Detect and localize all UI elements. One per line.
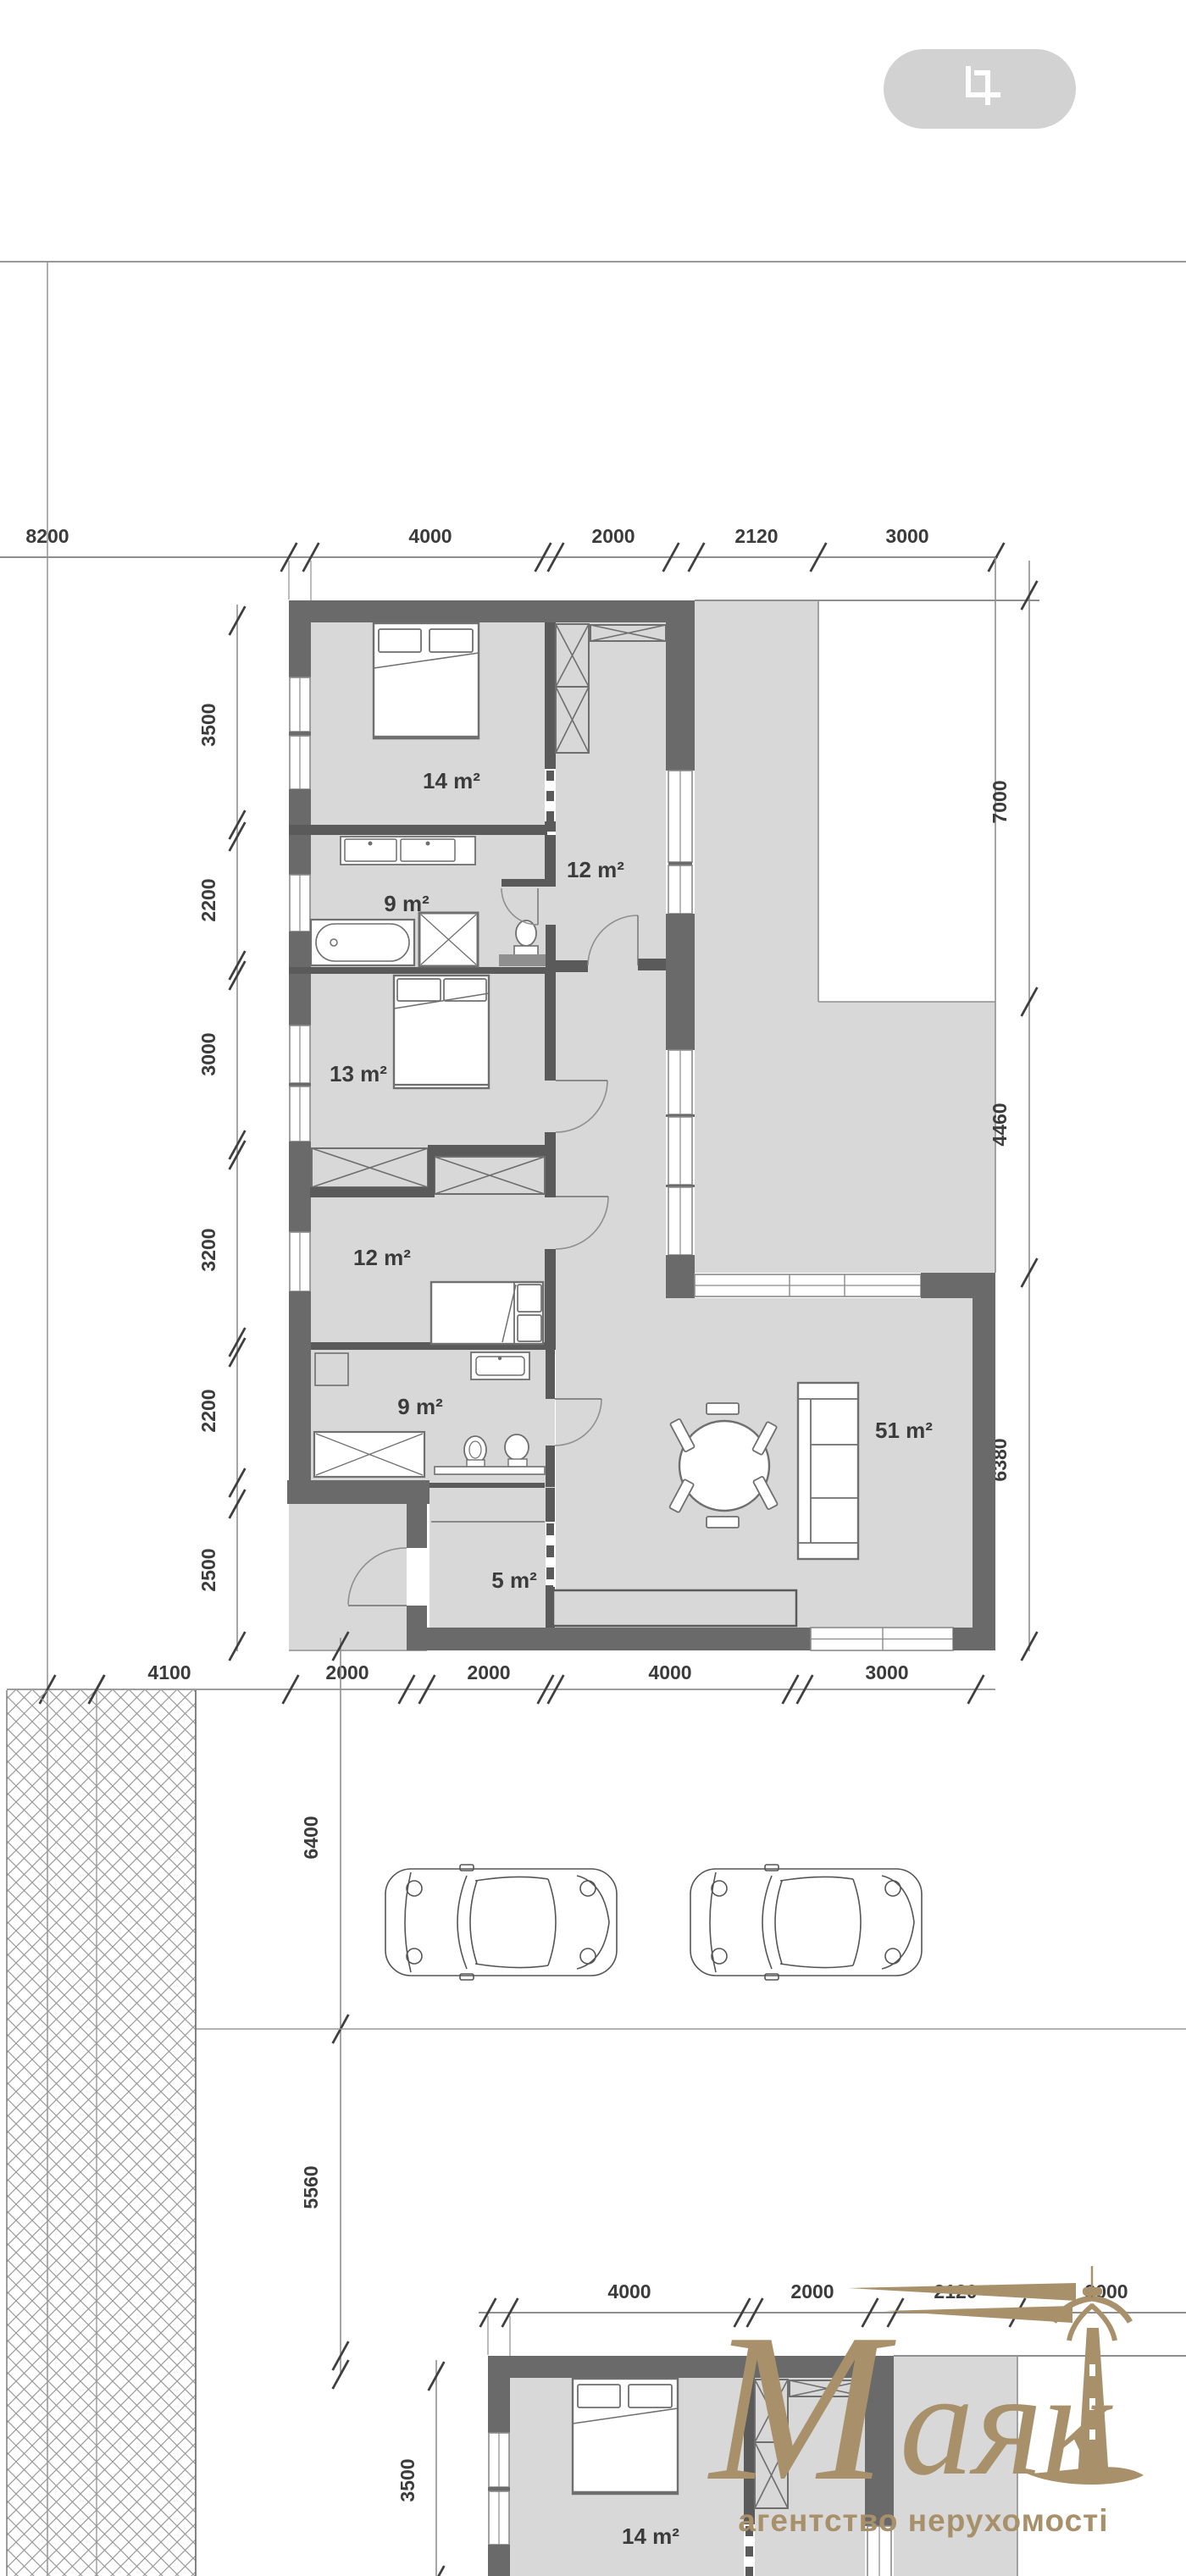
- svg-text:4100: 4100: [147, 1661, 191, 1683]
- svg-text:2200: 2200: [197, 878, 219, 921]
- svg-text:4460: 4460: [989, 1103, 1011, 1146]
- svg-text:2000: 2000: [325, 1661, 369, 1683]
- svg-text:аяк: аяк: [900, 2341, 1113, 2506]
- svg-text:51 m²: 51 m²: [875, 1418, 933, 1443]
- svg-text:2200: 2200: [197, 1389, 219, 1432]
- svg-text:9 m²: 9 m²: [397, 1394, 443, 1419]
- svg-text:13 m²: 13 m²: [330, 1061, 387, 1086]
- svg-text:5 m²: 5 m²: [491, 1567, 537, 1593]
- svg-text:6400: 6400: [300, 1816, 322, 1859]
- svg-text:7000: 7000: [989, 780, 1011, 823]
- svg-text:3200: 3200: [197, 1228, 219, 1271]
- svg-text:4000: 4000: [648, 1661, 691, 1683]
- svg-text:2500: 2500: [197, 1548, 219, 1591]
- svg-text:агентство нерухомості: агентство нерухомості: [738, 2503, 1108, 2538]
- svg-text:3000: 3000: [197, 1032, 219, 1075]
- svg-text:3000: 3000: [865, 1661, 908, 1683]
- svg-text:5560: 5560: [300, 2165, 322, 2208]
- svg-text:12 m²: 12 m²: [353, 1245, 411, 1270]
- svg-text:М: М: [707, 2291, 896, 2525]
- svg-text:8200: 8200: [25, 525, 69, 547]
- svg-text:2000: 2000: [467, 1661, 510, 1683]
